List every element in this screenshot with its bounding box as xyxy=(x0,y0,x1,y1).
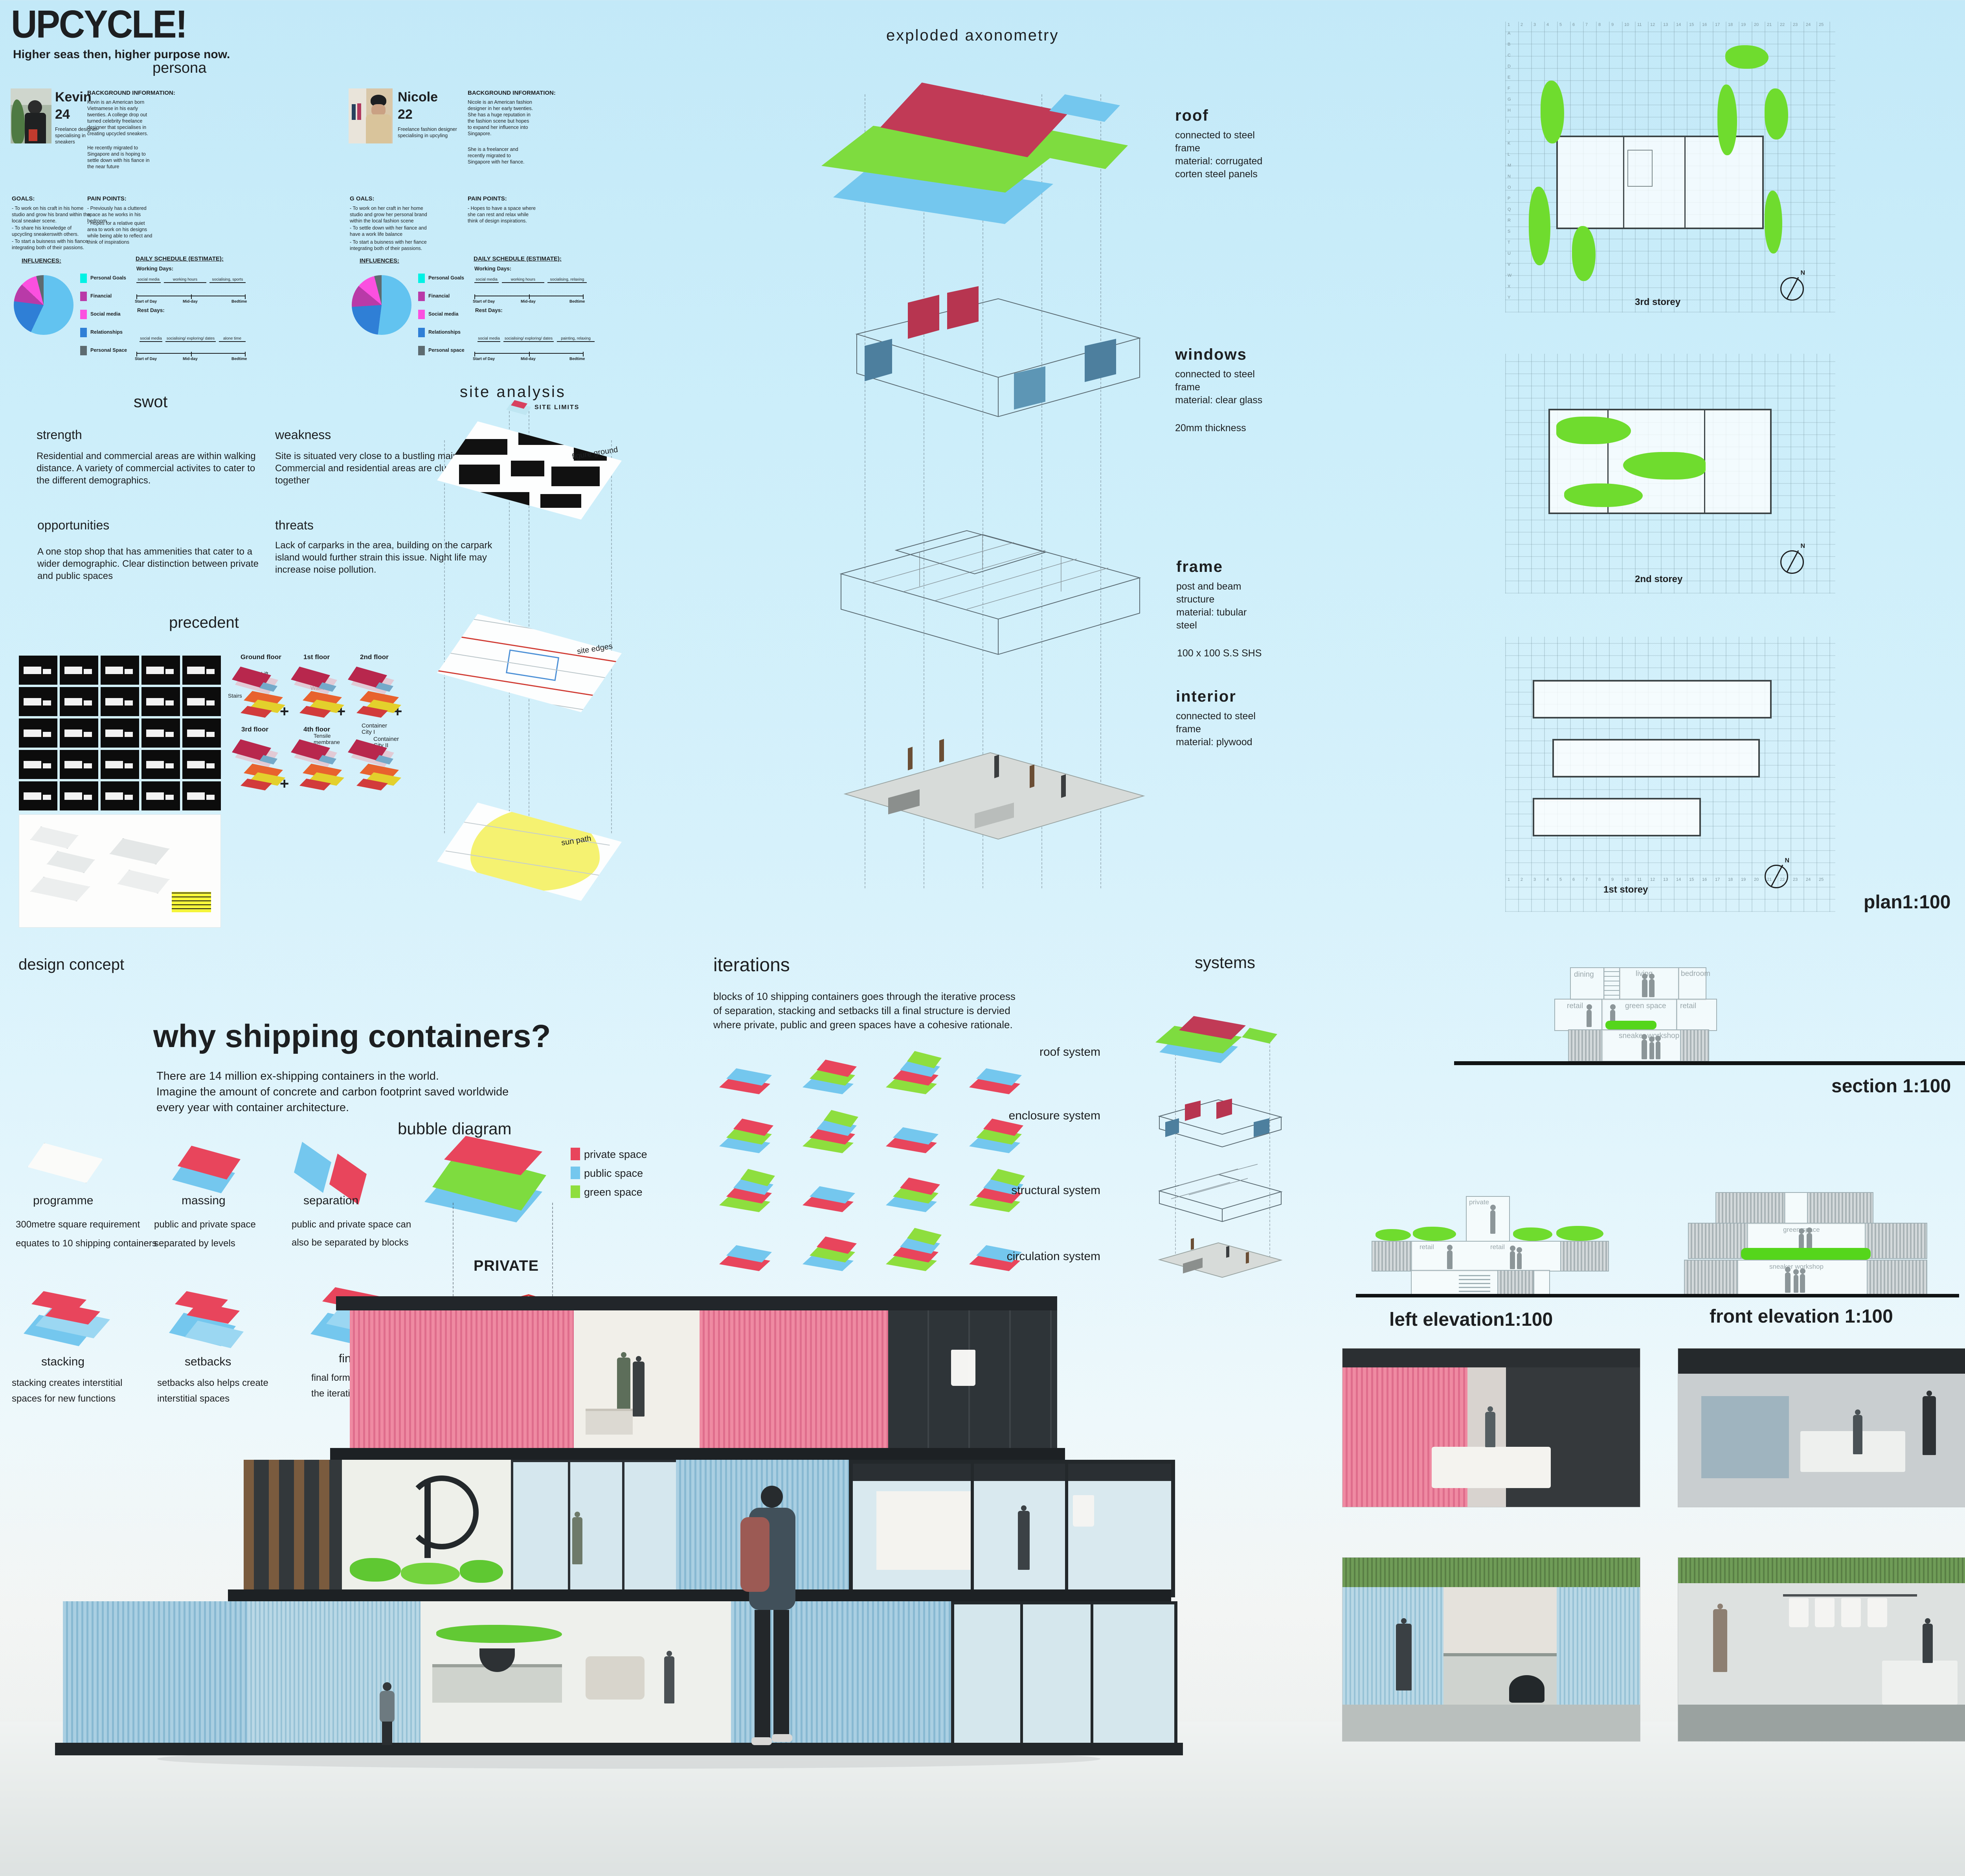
precedent-photo-thumbnail xyxy=(141,718,180,748)
north-arrow-icon: N xyxy=(1780,550,1804,574)
axon-roof-desc: corten steel panels xyxy=(1175,169,1258,180)
plan-grid-coordinate: 8 xyxy=(1598,22,1601,27)
timeline: Start of Day Mid-day Bedtime xyxy=(136,353,246,354)
plan-scale-label: plan1:100 xyxy=(1864,891,1950,913)
background-heading: BACKGROUND INFORMATION: xyxy=(87,90,175,96)
axon-interior-diagram xyxy=(810,700,1163,896)
plan-grid-coordinate: Y xyxy=(1508,295,1510,300)
site-layer-sun-path xyxy=(437,803,622,901)
step-label: massing xyxy=(182,1194,226,1207)
iteration-diagram xyxy=(799,1171,869,1218)
iterations-grid xyxy=(715,1053,1045,1289)
plan-grid-coordinate: 5 xyxy=(1559,877,1562,882)
legend-label: Financial xyxy=(90,293,112,299)
step-desc: 300metre square requirement xyxy=(16,1219,140,1230)
iterations-text: blocks of 10 shipping containers goes th… xyxy=(713,990,1016,1003)
axon-roof-label: roof xyxy=(1175,107,1209,125)
front-elevation-label: front elevation 1:100 xyxy=(1710,1306,1893,1327)
precedent-floor-diagram xyxy=(232,667,287,726)
cafe-interior xyxy=(421,1601,731,1743)
plan-grid-coordinate: N xyxy=(1508,174,1511,179)
persona-name: Nicole xyxy=(398,90,438,105)
axon-windows-desc: connected to steel xyxy=(1175,369,1255,380)
schedule-segment: working hours xyxy=(502,277,544,283)
top-interior xyxy=(574,1310,700,1448)
plan-grid-coordinate: 10 xyxy=(1624,22,1629,27)
space-legend-swatch xyxy=(571,1148,580,1160)
schedule-heading: DAILY SCHEDULE (ESTIMATE): xyxy=(136,255,224,262)
space-legend-label: private space xyxy=(584,1148,647,1161)
site-layer-site-edges xyxy=(437,614,622,712)
design-concept-heading: design concept xyxy=(18,956,124,974)
system-label: structural system xyxy=(1011,1184,1100,1197)
precedent-photo-thumbnail xyxy=(182,718,221,748)
container-pink-right xyxy=(700,1310,888,1448)
swot-strength-text: Residential and commercial areas are wit… xyxy=(37,450,264,487)
axon-frame-desc: structure xyxy=(1176,594,1214,605)
influences-pie-chart xyxy=(352,275,411,335)
axon-roof-desc: frame xyxy=(1175,143,1200,154)
axon-interior-desc: frame xyxy=(1176,724,1201,735)
legend-swatch xyxy=(418,274,425,283)
legend-label: Personal space xyxy=(428,347,465,353)
background-text-1: Nicole is an American fashion designer i… xyxy=(468,99,534,137)
precedent-form-box xyxy=(19,814,221,928)
plan-grid-coordinate: 2 xyxy=(1521,877,1523,882)
swot-heading: swot xyxy=(134,392,167,411)
page-title: UPCYCLE! xyxy=(11,2,186,47)
bubble-final-diagram xyxy=(421,1128,554,1230)
precedent-floor-diagram xyxy=(348,739,403,798)
iteration-diagram xyxy=(715,1230,786,1277)
front-elevation-drawing: green space sneaker workshop xyxy=(1682,1189,1934,1295)
precedent-photo-thumbnail xyxy=(182,781,221,810)
schedule-heading: DAILY SCHEDULE (ESTIMATE): xyxy=(474,255,562,262)
step-desc: public and private space xyxy=(154,1219,256,1230)
axon-windows-desc: material: clear glass xyxy=(1175,395,1262,406)
swot-threats-text: Lack of carparks in the area, building o… xyxy=(275,539,515,576)
plan-grid-coordinate: 12 xyxy=(1650,877,1655,882)
timeline: Start of Day Mid-day Bedtime xyxy=(136,296,246,296)
pain-item: - Hopes for a relative quiet area to wor… xyxy=(87,220,154,245)
background-heading: BACKGROUND INFORMATION: xyxy=(468,90,556,96)
plan-grid-coordinate: 3 xyxy=(1533,877,1536,882)
plan-grid-coordinate: X xyxy=(1508,284,1510,289)
goal-item: - To share his knowledge of upcycling sn… xyxy=(12,225,90,237)
precedent-photo-thumbnail xyxy=(60,687,98,716)
plan-grid-coordinate: Q xyxy=(1508,207,1511,212)
plan-grid-coordinate: 21 xyxy=(1767,22,1772,27)
left-elevation-label: left elevation1:100 xyxy=(1389,1309,1553,1330)
plan-grid-coordinate: W xyxy=(1508,273,1511,278)
precedent-photo-thumbnail xyxy=(19,750,57,779)
plan-grid-coordinate: 12 xyxy=(1650,22,1655,27)
axon-roof-desc: connected to steel xyxy=(1175,130,1255,141)
iteration-diagram xyxy=(882,1230,953,1277)
system-enclosure-diagram xyxy=(1148,1085,1289,1148)
legend-swatch xyxy=(80,274,87,283)
person-main xyxy=(731,1486,817,1761)
axon-interior-desc: connected to steel xyxy=(1176,711,1256,722)
precedent-floor-label: 1st floor xyxy=(303,653,330,661)
plan-grid-coordinate: 22 xyxy=(1780,22,1785,27)
legend-label: Personal Space xyxy=(90,347,127,353)
iterations-heading: iterations xyxy=(713,954,790,976)
persona-role: specialising in upcyling xyxy=(398,133,448,138)
legend-swatch xyxy=(418,292,425,301)
plan-grid-coordinate: 7 xyxy=(1585,22,1588,27)
axon-windows-diagram xyxy=(810,255,1163,440)
plan-grid-coordinate: 23 xyxy=(1793,22,1798,27)
plan-grid-coordinate: U xyxy=(1508,251,1511,256)
schedule-segment: socialising, sports xyxy=(209,277,246,283)
legend-swatch xyxy=(80,346,87,355)
render-retail-interior-1 xyxy=(1342,1348,1640,1507)
axon-frame-label: frame xyxy=(1176,558,1223,576)
influences-heading: INFLUENCES: xyxy=(22,257,61,264)
precedent-photo-thumbnail xyxy=(141,656,180,685)
plan-grid-coordinate: C xyxy=(1508,53,1511,58)
precedent-photo-grid xyxy=(19,656,220,810)
plan-grid-coordinate: 16 xyxy=(1702,877,1707,882)
storey-label: 2nd storey xyxy=(1635,574,1682,585)
site-limits-label: SITE LIMITS xyxy=(534,404,579,411)
space-legend-label: public space xyxy=(584,1167,643,1180)
axon-windows-desc: frame xyxy=(1175,382,1200,393)
plan-grid-coordinate: I xyxy=(1508,119,1509,124)
schedule-segment: socialising/ exploring/ dates xyxy=(503,336,554,342)
persona-role: specialising in xyxy=(55,133,86,138)
plan-grid-coordinate: 7 xyxy=(1585,877,1588,882)
background-text-2: He recently migrated to Singapore and is… xyxy=(87,145,152,170)
container-blue-1 xyxy=(63,1601,248,1743)
iteration-diagram xyxy=(715,1053,786,1101)
axon-roof-diagram xyxy=(806,59,1175,248)
legend-label: Social media xyxy=(428,311,458,317)
swot-weakness-title: weakness xyxy=(275,428,331,442)
storey-label: 1st storey xyxy=(1603,884,1648,895)
plan-grid-coordinate: 13 xyxy=(1663,877,1668,882)
swot-opportunities-text: A one stop shop that has ammenities that… xyxy=(37,546,269,582)
schedule-segment: working hours xyxy=(164,277,206,283)
iterations-text: of separation, stacking and setbacks til… xyxy=(713,1005,1010,1017)
precedent-photo-thumbnail xyxy=(182,687,221,716)
glass-end xyxy=(951,1601,1177,1749)
plan-grid-coordinate: 10 xyxy=(1624,877,1629,882)
axon-interior-label: interior xyxy=(1176,688,1236,706)
step-label: separation xyxy=(303,1194,358,1207)
schedule-segment: socialising/ exploring/ dates xyxy=(165,336,216,342)
precedent-photo-thumbnail xyxy=(141,750,180,779)
working-days-label: Working Days: xyxy=(136,266,173,272)
plan-grid-coordinate: 25 xyxy=(1819,877,1824,882)
plan-grid-coordinate: 2 xyxy=(1521,22,1523,27)
timeline: Start of Day Mid-day Bedtime xyxy=(474,353,584,354)
precedent-photo-thumbnail xyxy=(60,750,98,779)
precedent-floor-diagrams xyxy=(220,663,448,812)
concept-paragraph: Imagine the amount of concrete and carbo… xyxy=(156,1086,509,1099)
goal-item: - To start a buisness with his fiance in… xyxy=(12,238,90,251)
plan-1st-storey: 1234567891011121314151617181920212223242… xyxy=(1505,637,1835,912)
space-legend-label: green space xyxy=(584,1186,643,1198)
legend-label: Personal Goals xyxy=(90,275,126,281)
swot-opportunities-title: opportunities xyxy=(37,518,109,533)
plan-grid-coordinate: 9 xyxy=(1611,22,1614,27)
plan-grid-coordinate: 15 xyxy=(1689,877,1694,882)
legend-label: Relationships xyxy=(428,329,461,335)
plan-grid-coordinate: 18 xyxy=(1728,877,1733,882)
top-glass xyxy=(888,1310,1057,1451)
precedent-photo-thumbnail xyxy=(19,687,57,716)
plan-grid-coordinate: 20 xyxy=(1754,877,1759,882)
plan-grid-coordinate: 16 xyxy=(1702,22,1707,27)
influences-pie-chart xyxy=(14,275,73,335)
plan-grid-coordinate: R xyxy=(1508,218,1511,223)
pain-heading: PAIN POINTS: xyxy=(468,195,507,202)
precedent-photo-thumbnail xyxy=(101,687,139,716)
person-small xyxy=(377,1682,397,1745)
schedule-segment: social media xyxy=(474,277,499,283)
precedent-photo-thumbnail xyxy=(101,750,139,779)
plan-grid-coordinate: J xyxy=(1508,130,1510,135)
plan-grid-coordinate: 17 xyxy=(1715,22,1720,27)
system-label: roof system xyxy=(1039,1045,1100,1059)
precedent-photo-thumbnail xyxy=(101,781,139,810)
plan-grid-coordinate: 14 xyxy=(1676,877,1681,882)
container-pink-left xyxy=(350,1310,574,1448)
schedule-segment: social media xyxy=(140,336,162,342)
plan-grid-coordinate: F xyxy=(1508,86,1510,91)
goal-item: - To start a buisness with her fiance in… xyxy=(350,239,430,252)
schedule-segment: alone time xyxy=(219,336,246,342)
north-arrow-icon: N xyxy=(1780,277,1804,301)
legend-label: Relationships xyxy=(90,329,123,335)
plan-grid-coordinate: V xyxy=(1508,262,1510,267)
precedent-floor-diagram xyxy=(232,739,287,798)
axon-frame-diagram xyxy=(802,480,1167,684)
plan-grid-coordinate: 24 xyxy=(1806,877,1811,882)
plan-grid-coordinate: 25 xyxy=(1819,22,1824,27)
system-structural-diagram xyxy=(1148,1159,1289,1222)
goals-heading: GOALS: xyxy=(12,195,35,202)
legend-label: Personal Goals xyxy=(428,275,464,281)
mid-glass xyxy=(511,1460,681,1594)
plan-grid-coordinate: 14 xyxy=(1676,22,1681,27)
swot-strength-title: strength xyxy=(37,428,82,442)
axon-windows-extra: 20mm thickness xyxy=(1175,423,1246,434)
system-roof-diagram xyxy=(1151,1014,1285,1069)
render-clothing-retail xyxy=(1678,1557,1965,1742)
persona-photo xyxy=(11,88,51,143)
persona-role: Freelance fashion designer xyxy=(398,127,457,132)
persona-age: 22 xyxy=(398,107,413,122)
plan-grid-coordinate: 23 xyxy=(1793,877,1798,882)
poster-upcycle: { "header": { "title": "UPCYCLE!", "subt… xyxy=(0,0,1965,1876)
north-arrow-icon: N xyxy=(1765,865,1788,888)
legend-swatch xyxy=(80,310,87,319)
persona-heading: persona xyxy=(152,60,206,77)
iteration-diagram xyxy=(965,1053,1036,1101)
storey-label: 3rd storey xyxy=(1635,297,1680,308)
background-text-1: Kevin is an American born Vietnamese in … xyxy=(87,99,152,137)
timeline: Start of Day Mid-day Bedtime xyxy=(474,296,584,296)
precedent-highlight xyxy=(172,892,211,912)
axon-windows-label: windows xyxy=(1175,346,1247,364)
step-desc: separated by levels xyxy=(154,1238,235,1249)
left-elevation-drawing: private retail retail xyxy=(1368,1193,1635,1295)
plan-grid-coordinate: 17 xyxy=(1715,877,1720,882)
legend-swatch xyxy=(418,346,425,355)
precedent-photo-thumbnail xyxy=(101,718,139,748)
axon-interior-desc: material: plywood xyxy=(1176,737,1252,748)
step-desc: public and private space can xyxy=(292,1219,411,1230)
precedent-floor-label: 2nd floor xyxy=(360,653,389,661)
space-legend-swatch xyxy=(571,1167,580,1179)
system-label: enclosure system xyxy=(1009,1109,1100,1123)
plan-grid-coordinate: 5 xyxy=(1559,22,1562,27)
plan-grid-coordinate: E xyxy=(1508,75,1510,80)
axon-frame-extra: 100 x 100 S.S SHS xyxy=(1177,648,1262,659)
plan-grid-coordinate: 20 xyxy=(1754,22,1759,27)
schedule-segment: painting, relaxing xyxy=(557,336,595,342)
axon-roof-desc: material: corrugated xyxy=(1175,156,1262,167)
plan-grid-coordinate: 6 xyxy=(1572,22,1575,27)
legend-label: Financial xyxy=(428,293,450,299)
plan-grid-coordinate: 3 xyxy=(1533,22,1536,27)
schedule-segment: socialising, relaxing xyxy=(547,277,587,283)
plan-grid-coordinate: 19 xyxy=(1741,877,1746,882)
precedent-floor-diagram xyxy=(291,667,346,726)
plan-2nd-storey: 2nd storey N xyxy=(1505,354,1835,593)
plan-grid-coordinate: 11 xyxy=(1637,22,1642,27)
plan-grid-coordinate: A xyxy=(1508,31,1510,36)
wood-columns xyxy=(244,1460,342,1589)
plan-grid-coordinate: 9 xyxy=(1611,877,1614,882)
elevation-ground-line xyxy=(1356,1294,1959,1297)
influences-heading: INFLUENCES: xyxy=(360,257,399,264)
precedent-floor-diagram xyxy=(291,739,346,798)
section-drawing: dining living bedroom retail green space… xyxy=(1552,965,1723,1063)
axon-frame-desc: steel xyxy=(1176,620,1197,631)
precedent-floor-diagram xyxy=(348,667,403,726)
why-shipping-heading: why shipping containers? xyxy=(153,1018,551,1055)
precedent-photo-thumbnail xyxy=(101,656,139,685)
precedent-photo-thumbnail xyxy=(141,687,180,716)
iterations-text: where private, public and green spaces h… xyxy=(713,1019,1013,1031)
right-glass-wing xyxy=(849,1460,1175,1597)
step-desc: also be separated by blocks xyxy=(292,1237,409,1248)
plan-grid-coordinate: B xyxy=(1508,42,1510,47)
axon-frame-desc: post and beam xyxy=(1176,581,1241,592)
plan-grid-coordinate: 1 xyxy=(1508,877,1510,882)
iteration-diagram xyxy=(882,1171,953,1218)
section-ground-line xyxy=(1454,1061,1965,1065)
persona-photo xyxy=(349,88,393,143)
render-reception-interior xyxy=(1678,1348,1965,1507)
legend-label: Social media xyxy=(90,311,120,317)
plan-grid-coordinate: 4 xyxy=(1546,877,1549,882)
precedent-photo-thumbnail xyxy=(141,781,180,810)
plan-grid-coordinate: 15 xyxy=(1689,22,1694,27)
legend-swatch xyxy=(418,310,425,319)
goals-heading: G OALS: xyxy=(350,195,375,202)
precedent-photo-thumbnail xyxy=(19,656,57,685)
precedent-photo-thumbnail xyxy=(60,781,98,810)
rest-days-label: Rest Days: xyxy=(475,307,503,313)
iteration-diagram xyxy=(799,1053,869,1101)
plan-grid-coordinate: M xyxy=(1508,163,1511,168)
plan-3rd-storey: 1234567891011121314151617181920212223242… xyxy=(1505,22,1835,312)
plan-grid-coordinate: 24 xyxy=(1806,22,1811,27)
space-legend-swatch xyxy=(571,1185,580,1198)
goal-item: - To settle down with her fiance and hav… xyxy=(350,225,430,237)
step-desc: equates to 10 shipping containers xyxy=(16,1238,157,1249)
precedent-photo-thumbnail xyxy=(60,718,98,748)
plan-grid-coordinate: 1 xyxy=(1508,22,1510,27)
iteration-diagram xyxy=(715,1112,786,1159)
precedent-photo-thumbnail xyxy=(19,718,57,748)
schedule-segment: social media xyxy=(136,277,161,283)
iteration-diagram xyxy=(882,1112,953,1159)
precedent-photo-thumbnail xyxy=(60,656,98,685)
legend-swatch xyxy=(80,328,87,337)
plan-grid-coordinate: 8 xyxy=(1598,877,1601,882)
site-connector xyxy=(611,440,612,833)
systems-heading: systems xyxy=(1195,953,1255,972)
precedent-photo-thumbnail xyxy=(19,781,57,810)
plan-grid-coordinate: 6 xyxy=(1572,877,1575,882)
rest-days-label: Rest Days: xyxy=(137,307,165,313)
plan-grid-coordinate: 19 xyxy=(1741,22,1746,27)
axon-frame-desc: material: tubular xyxy=(1176,607,1247,618)
site-analysis-heading: site analysis xyxy=(460,383,566,401)
plan-grid-coordinate: D xyxy=(1508,64,1511,69)
iteration-diagram xyxy=(799,1112,869,1159)
plan-grid-coordinate: 11 xyxy=(1637,877,1642,882)
pain-heading: PAIN POINTS: xyxy=(87,195,127,202)
swot-threats-title: threats xyxy=(275,518,314,533)
step-label: programme xyxy=(33,1194,93,1207)
goal-item: - To work on his craft in his home studi… xyxy=(12,205,90,224)
background-text-2: She is a freelancer and recently migrate… xyxy=(468,146,534,165)
goal-item: - To work on her craft in her home studi… xyxy=(350,205,430,224)
step-separation-diagram xyxy=(294,1142,331,1193)
axonometry-heading: exploded axonometry xyxy=(886,27,1059,44)
plan-grid-coordinate: G xyxy=(1508,97,1511,102)
iteration-diagram xyxy=(882,1053,953,1101)
plan-grid-coordinate: P xyxy=(1508,196,1510,201)
plan-grid-coordinate: 13 xyxy=(1663,22,1668,27)
iteration-diagram xyxy=(799,1230,869,1277)
persona-name: Kevin xyxy=(55,90,92,105)
concept-paragraph: There are 14 million ex-shipping contain… xyxy=(156,1070,439,1083)
concept-paragraph: every year with container architecture. xyxy=(156,1101,349,1114)
iteration-diagram xyxy=(715,1171,786,1218)
section-label: section 1:100 xyxy=(1831,1075,1951,1097)
plan-grid-coordinate: H xyxy=(1508,108,1511,113)
legend-swatch xyxy=(80,292,87,301)
plan-grid-coordinate: L xyxy=(1508,152,1510,157)
step-programme-diagram xyxy=(28,1143,103,1183)
schedule-segment: social media xyxy=(477,336,500,342)
page-subtitle: Higher seas then, higher purpose now. xyxy=(13,48,230,61)
plan-grid-coordinate: 4 xyxy=(1546,22,1549,27)
plan-grid-coordinate: K xyxy=(1508,141,1510,146)
precedent-photo-thumbnail xyxy=(182,656,221,685)
precedent-photo-thumbnail xyxy=(182,750,221,779)
render-workshop-interior xyxy=(1342,1557,1640,1742)
persona-age: 24 xyxy=(55,107,70,122)
